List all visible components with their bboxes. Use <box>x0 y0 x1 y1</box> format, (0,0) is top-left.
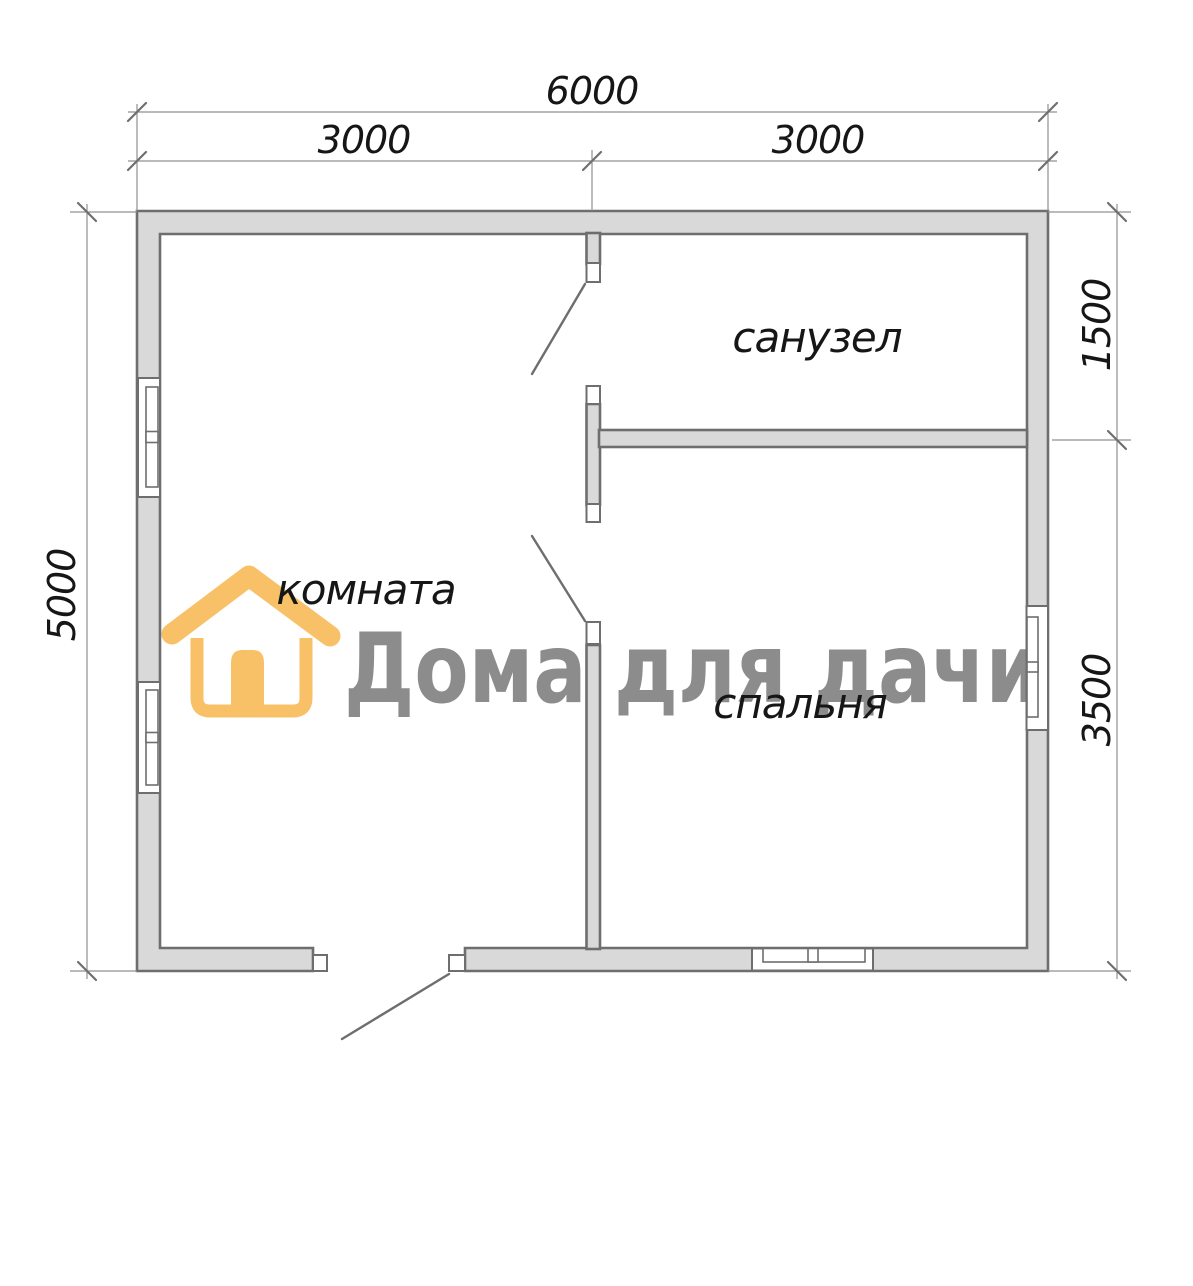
jamb <box>587 504 601 522</box>
window-left-lower <box>138 682 160 793</box>
bathroom-bedroom-divider-wall <box>599 430 1027 447</box>
dim-label-width-right: 3000 <box>772 118 865 162</box>
window-bottom-bedroom <box>752 949 873 971</box>
dim-label-right-top: 1500 <box>1075 279 1119 372</box>
dim-label-height-total: 5000 <box>40 549 84 642</box>
floor-plan-page: Дома для дачи <box>0 0 1193 1286</box>
dimension-left: 5000 <box>40 203 137 980</box>
dim-label-width-left: 3000 <box>318 118 411 162</box>
room-label-bathroom: санузел <box>732 313 901 362</box>
dimension-right: 1500 3500 <box>1048 203 1131 980</box>
jamb <box>449 955 465 971</box>
watermark-text: Дома для дачи <box>344 613 1041 725</box>
window-left-upper <box>138 378 160 497</box>
dimension-top: 6000 3000 3000 <box>128 69 1057 211</box>
bedroom-door-leaf <box>532 536 585 621</box>
entry-door-leaf <box>342 974 449 1039</box>
room-label-room: комната <box>276 565 455 614</box>
dim-label-right-bottom: 3500 <box>1075 654 1119 747</box>
room-label-bedroom: спальня <box>713 679 887 728</box>
bathroom-door-leaf <box>532 284 585 374</box>
floor-plan-drawing: Дома для дачи <box>0 0 1193 1286</box>
partition-middle <box>587 404 601 505</box>
jamb <box>587 263 601 282</box>
partition-stub-top <box>587 233 601 264</box>
jamb <box>587 386 601 404</box>
house-door-icon <box>231 650 264 712</box>
jamb <box>313 955 327 971</box>
window-right-bedroom <box>1027 606 1049 730</box>
partition-bottom <box>587 645 601 949</box>
jamb <box>587 622 601 644</box>
dim-label-width-total: 6000 <box>546 69 639 113</box>
